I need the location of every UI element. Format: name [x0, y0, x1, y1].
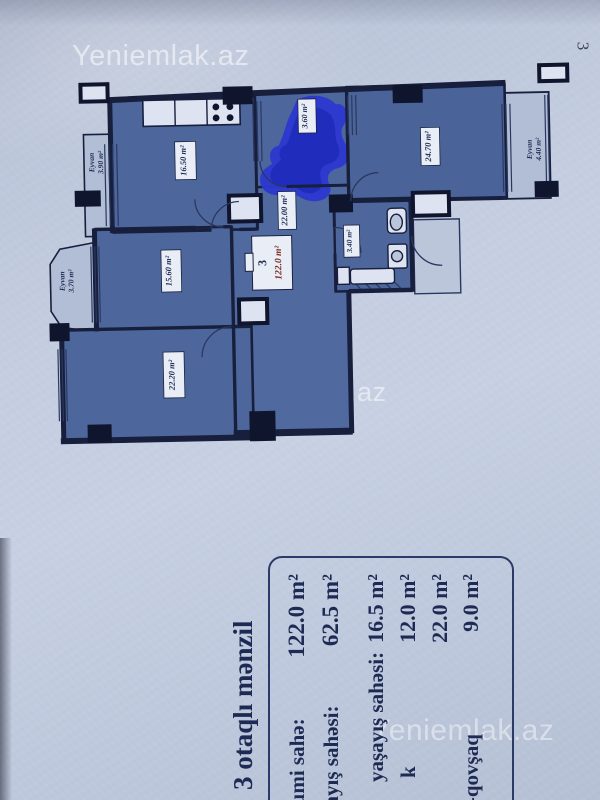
room-area-row: yaşayış sahəsi: 16.5 m² [360, 574, 392, 800]
svg-text:122.0 m²: 122.0 m² [274, 244, 285, 279]
room-area-value: 9.0 m² [455, 574, 486, 632]
svg-text:Eyvan: Eyvan [525, 139, 534, 160]
room-area-label: San-qovşaq [456, 734, 487, 800]
label-balcony-right: Eyvan 4.40 m² [525, 137, 544, 162]
room-area-row: k 12.0 m² [392, 574, 424, 800]
room-area-value: 16.5 m² [360, 574, 391, 643]
svg-text:3.60 m²: 3.60 m² [300, 103, 310, 129]
label-bathroom-area: 3.40 m² [343, 225, 360, 257]
info-table-box: Ümumi sahə: 122.0 m² Yaşayış sahəsi: 62.… [268, 556, 514, 800]
svg-text:3.70 m²: 3.70 m² [66, 269, 76, 294]
room-area-row: San-qovşaq 9.0 m² [455, 574, 487, 800]
info-table: 3 otaqlı mənzil Ümumi sahə: 122.0 m² Yaş… [228, 542, 528, 800]
svg-text:4.40 m²: 4.40 m² [534, 137, 544, 162]
svg-text:22.00 m²: 22.00 m² [279, 195, 290, 227]
label-bedroom-area: 15.60 m² [161, 250, 182, 292]
info-table-header: 3 otaqlı mənzil [228, 542, 268, 800]
room-area-value: 22.0 m² [424, 574, 455, 643]
total-area-row: Ümumi sahə: 122.0 m² [280, 574, 314, 800]
living-area-label: Yaşayış sahəsi: [314, 706, 348, 800]
bathtub-icon [350, 268, 394, 284]
label-small-room-area: 3.60 m² [298, 99, 317, 133]
living-area-value: 62.5 m² [314, 574, 348, 646]
room-area-label: yaşayış sahəsi: [361, 652, 392, 782]
label-living-room-area: 22.20 m² [163, 352, 185, 398]
living-area-row: Yaşayış sahəsi: 62.5 m² [314, 574, 348, 800]
svg-text:16.50 m²: 16.50 m² [178, 145, 189, 176]
label-large-room-area: 24.70 m² [420, 127, 440, 165]
svg-text:Eyvan: Eyvan [57, 271, 66, 292]
svg-text:3: 3 [255, 260, 269, 266]
svg-text:3.90 m²: 3.90 m² [96, 150, 106, 175]
label-balcony-left: Eyvan 3.70 m² [57, 269, 76, 294]
svg-text:15.60 m²: 15.60 m² [163, 255, 174, 286]
total-area-label: Ümumi sahə: [280, 718, 314, 800]
label-balcony-top-left: Eyvan 3.90 m² [87, 150, 106, 175]
room-area-value: 12.0 m² [392, 574, 423, 643]
label-kitchen-area: 16.50 m² [175, 141, 197, 179]
room-area-row: 22.0 m² [424, 574, 455, 800]
total-area-value: 122.0 m² [280, 574, 314, 658]
svg-text:24.70 m²: 24.70 m² [422, 131, 433, 163]
photo-left-shadow [0, 538, 12, 800]
label-hallway-area: 22.00 m² [278, 191, 297, 229]
floor-plan: 16.50 m² 3.60 m² 24.70 m² 22.00 m² 3.40 … [26, 44, 594, 466]
room-area-label: k [393, 766, 424, 778]
svg-text:Eyvan: Eyvan [87, 153, 96, 174]
washer-icon [337, 267, 349, 284]
svg-text:3.40 m²: 3.40 m² [344, 229, 354, 254]
photo-top-shadow [0, 0, 600, 26]
svg-text:22.20 m²: 22.20 m² [166, 359, 177, 391]
